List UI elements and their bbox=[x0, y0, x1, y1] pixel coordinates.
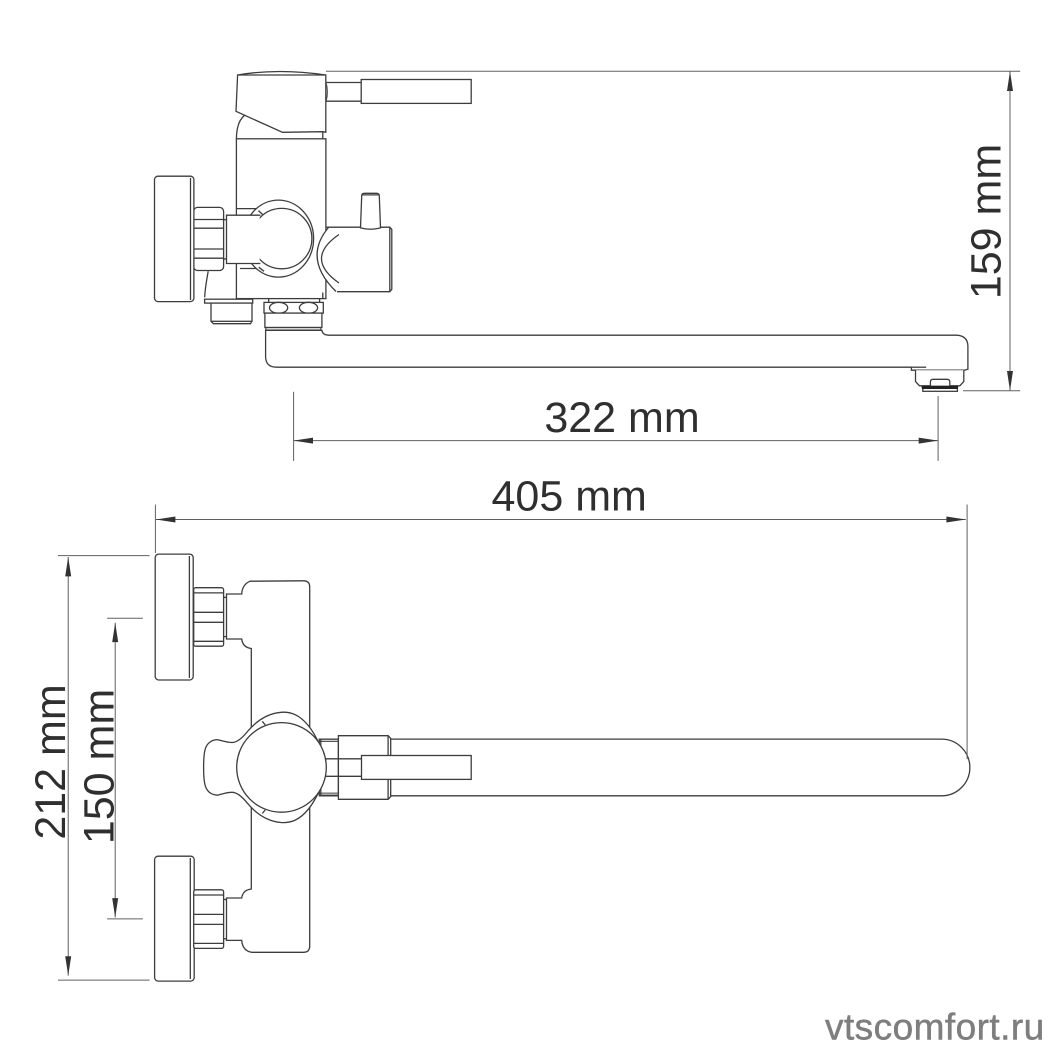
svg-text:322 mm: 322 mm bbox=[544, 394, 699, 442]
svg-text:159 mm: 159 mm bbox=[963, 144, 1011, 299]
svg-text:212 mm: 212 mm bbox=[27, 684, 75, 839]
svg-text:405 mm: 405 mm bbox=[492, 473, 647, 521]
svg-text:150 mm: 150 mm bbox=[76, 689, 124, 844]
svg-text:vtscomfort.ru: vtscomfort.ru bbox=[825, 1007, 1045, 1048]
